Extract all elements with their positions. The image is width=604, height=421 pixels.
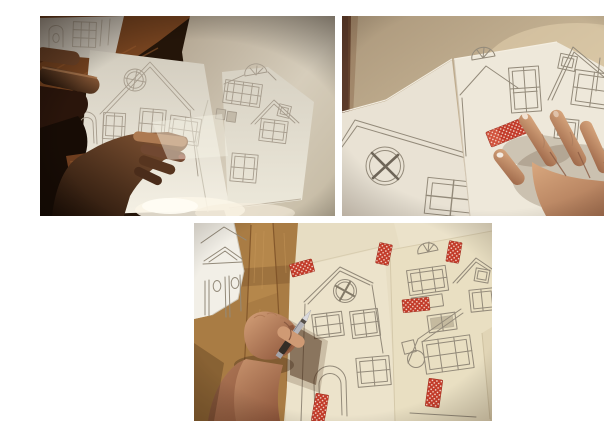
vignette xyxy=(342,16,604,216)
photo-collage xyxy=(0,0,604,405)
vignette xyxy=(194,223,492,421)
photo-sketching-scene xyxy=(40,16,335,216)
photo-taping-scene xyxy=(342,16,604,216)
photo-cutting-scene xyxy=(194,223,492,421)
photo-sketching-templates xyxy=(40,16,335,216)
photo-cutting-templates xyxy=(194,223,492,421)
photo-taping-templates xyxy=(342,16,604,216)
vignette xyxy=(40,16,335,216)
